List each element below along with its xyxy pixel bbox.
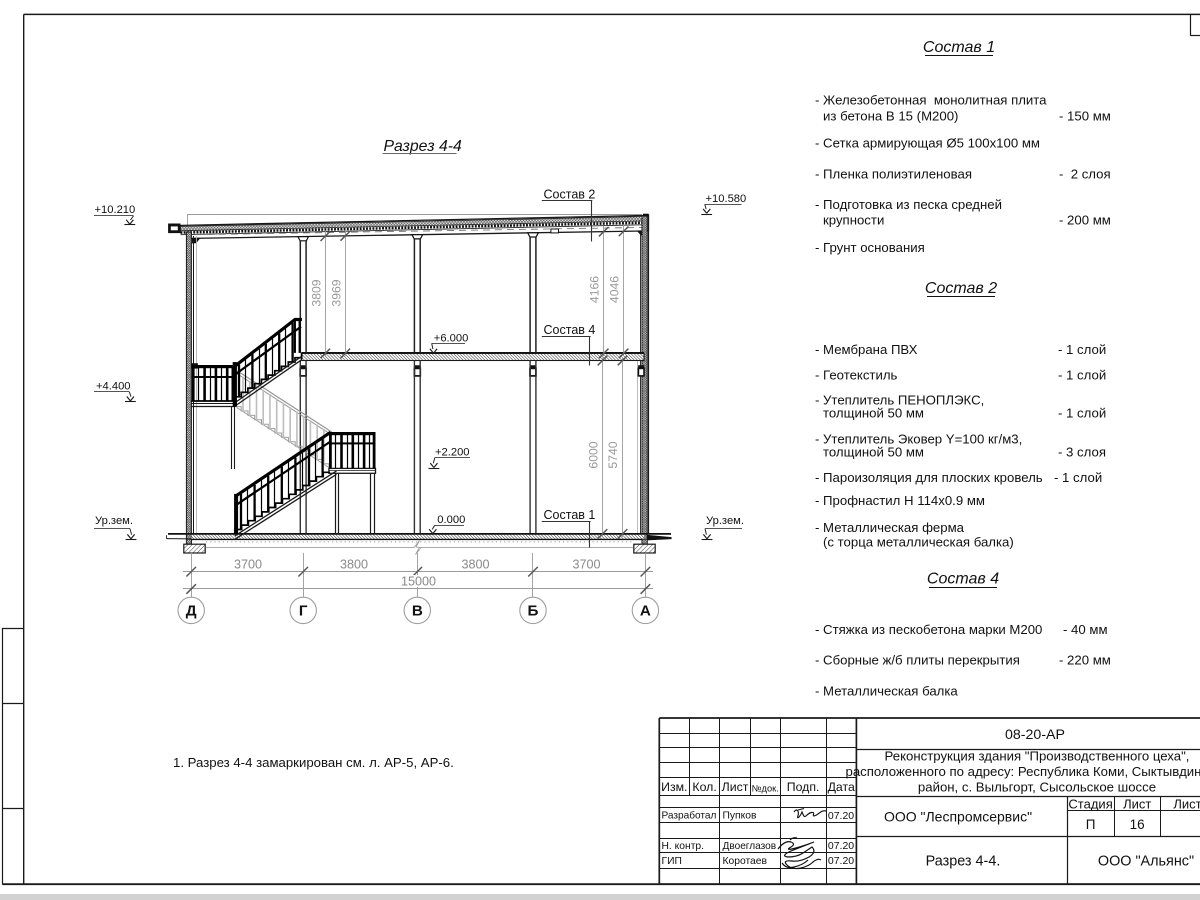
svg-text:Б: Б [528, 603, 539, 620]
svg-text:3809: 3809 [309, 279, 323, 306]
svg-text:(с торца металлическая балка): (с торца металлическая балка) [823, 535, 1014, 550]
svg-text:Пупков: Пупков [723, 811, 757, 822]
svg-text:В: В [412, 603, 423, 620]
svg-text:07.20: 07.20 [828, 810, 854, 822]
svg-text:Стадия: Стадия [1068, 797, 1112, 812]
svg-text:- 2 слоя: - 2 слоя [1059, 167, 1111, 182]
svg-text:- Грунт основания: - Грунт основания [815, 240, 925, 255]
svg-text:Дата: Дата [828, 780, 855, 794]
svg-text:Разрез 4-4.: Разрез 4-4. [926, 853, 1001, 869]
svg-text:16: 16 [1130, 817, 1145, 832]
svg-text:Разрез 4-4: Разрез 4-4 [384, 138, 462, 155]
svg-text:5740: 5740 [606, 441, 620, 468]
svg-text:+4.400: +4.400 [96, 380, 131, 392]
svg-text:+6.000: +6.000 [434, 333, 469, 345]
svg-text:4046: 4046 [607, 276, 621, 303]
svg-text:07.20: 07.20 [828, 855, 854, 867]
svg-text:3700: 3700 [572, 557, 600, 571]
svg-text:- Пленка полиэтиленовая: - Пленка полиэтиленовая [815, 167, 972, 182]
svg-text:Лист: Лист [722, 780, 749, 794]
svg-text:- Сборные ж/б плиты перекрытия: - Сборные ж/б плиты перекрытия [815, 653, 1020, 668]
svg-text:+10.580: +10.580 [706, 193, 747, 205]
svg-text:- 1 слой: - 1 слой [1058, 368, 1106, 383]
svg-text:Листов: Листов [1173, 797, 1200, 812]
svg-text:3700: 3700 [234, 557, 262, 571]
svg-text:Состав 2: Состав 2 [544, 188, 596, 202]
svg-text:ООО "Леспромсервис": ООО "Леспромсервис" [884, 808, 1032, 824]
svg-text:Состав 4: Состав 4 [927, 571, 999, 588]
svg-text:расположенного по адресу: Респ: расположенного по адресу: Республика Ком… [845, 764, 1200, 779]
svg-text:15000: 15000 [401, 575, 436, 589]
svg-text:Реконструкция здания "Производ: Реконструкция здания "Производственного … [885, 749, 1190, 764]
svg-text:Д: Д [186, 603, 197, 620]
svg-text:ООО "Альянс": ООО "Альянс" [1098, 853, 1194, 869]
svg-text:Г: Г [299, 603, 308, 620]
svg-text:- Геотекстиль: - Геотекстиль [815, 368, 898, 383]
svg-text:- 1 слой: - 1 слой [1058, 405, 1106, 420]
svg-text:Изм.: Изм. [661, 780, 687, 794]
svg-text:Ур.зем.: Ур.зем. [706, 515, 744, 527]
svg-text:Двоеглазов: Двоеглазов [723, 841, 777, 852]
svg-text:6000: 6000 [586, 441, 600, 468]
svg-text:- Пароизоляция для плоских кро: - Пароизоляция для плоских кровель [815, 470, 1043, 485]
svg-text:3800: 3800 [461, 557, 489, 571]
svg-text:Ур.зем.: Ур.зем. [95, 515, 133, 527]
svg-text:Н. контр.: Н. контр. [662, 841, 705, 852]
svg-text:№док.: №док. [752, 783, 779, 793]
svg-text:- Подготовка из песка средней: - Подготовка из песка средней [815, 197, 1002, 212]
svg-text:Состав 2: Состав 2 [925, 280, 997, 297]
svg-text:крупности: крупности [823, 213, 884, 228]
svg-text:Состав 4: Состав 4 [544, 323, 596, 337]
svg-text:3800: 3800 [340, 557, 368, 571]
svg-text:Лист: Лист [1123, 797, 1151, 812]
svg-text:07.20: 07.20 [828, 840, 854, 852]
svg-text:- 3 слоя: - 3 слоя [1058, 444, 1106, 459]
svg-text:П: П [1086, 817, 1096, 832]
svg-text:- Металлическая ферма: - Металлическая ферма [815, 520, 965, 535]
svg-text:0.000: 0.000 [437, 514, 465, 526]
svg-text:08-20-АР: 08-20-АР [1005, 727, 1065, 743]
svg-text:Разработал: Разработал [662, 810, 717, 822]
svg-text:- Профнастил Н 114х0.9 мм: - Профнастил Н 114х0.9 мм [815, 493, 985, 508]
svg-text:- Мембрана ПВХ: - Мембрана ПВХ [815, 342, 918, 357]
svg-text:Коротаев: Коротаев [723, 856, 768, 867]
svg-text:- 1 слой: - 1 слой [1058, 342, 1106, 357]
svg-text:Подп.: Подп. [787, 780, 820, 794]
svg-text:Состав 1: Состав 1 [544, 508, 596, 522]
svg-text:- 200 мм: - 200 мм [1059, 213, 1111, 228]
svg-text:толщиной 50 мм: толщиной 50 мм [823, 405, 924, 420]
svg-text:- 1 слой: - 1 слой [1054, 470, 1102, 485]
svg-text:4166: 4166 [588, 276, 602, 303]
svg-text:- 220 мм: - 220 мм [1059, 653, 1111, 668]
svg-text:- Железобетонная монолитная п: - Железобетонная монолитная плита [815, 92, 1047, 107]
svg-text:Состав 1: Состав 1 [923, 39, 995, 56]
svg-text:- 40 мм: - 40 мм [1063, 622, 1108, 637]
svg-text:1. Разрез 4-4 замаркирован см.: 1. Разрез 4-4 замаркирован см. л. АР-5, … [173, 755, 454, 770]
svg-text:ГИП: ГИП [662, 856, 682, 867]
svg-text:- Стяжка из пескобетона марки: - Стяжка из пескобетона марки М200 [815, 622, 1042, 637]
svg-text:- Сетка армирующая Ø5 100х100: - Сетка армирующая Ø5 100х100 мм [815, 136, 1040, 151]
svg-text:- 150 мм: - 150 мм [1059, 108, 1111, 123]
svg-text:+2.200: +2.200 [435, 447, 470, 459]
svg-text:+10.210: +10.210 [95, 204, 136, 216]
svg-text:Кол.: Кол. [692, 780, 716, 794]
svg-text:район, с. Выльгорт, Сысольское: район, с. Выльгорт, Сысольское шоссе [918, 780, 1156, 795]
svg-text:- Металлическая балка: - Металлическая балка [815, 683, 958, 698]
svg-text:А: А [640, 603, 651, 620]
svg-text:из бетона В 15 (М200): из бетона В 15 (М200) [823, 108, 958, 123]
svg-text:толщиной 50 мм: толщиной 50 мм [823, 444, 924, 459]
svg-text:3969: 3969 [329, 279, 343, 306]
